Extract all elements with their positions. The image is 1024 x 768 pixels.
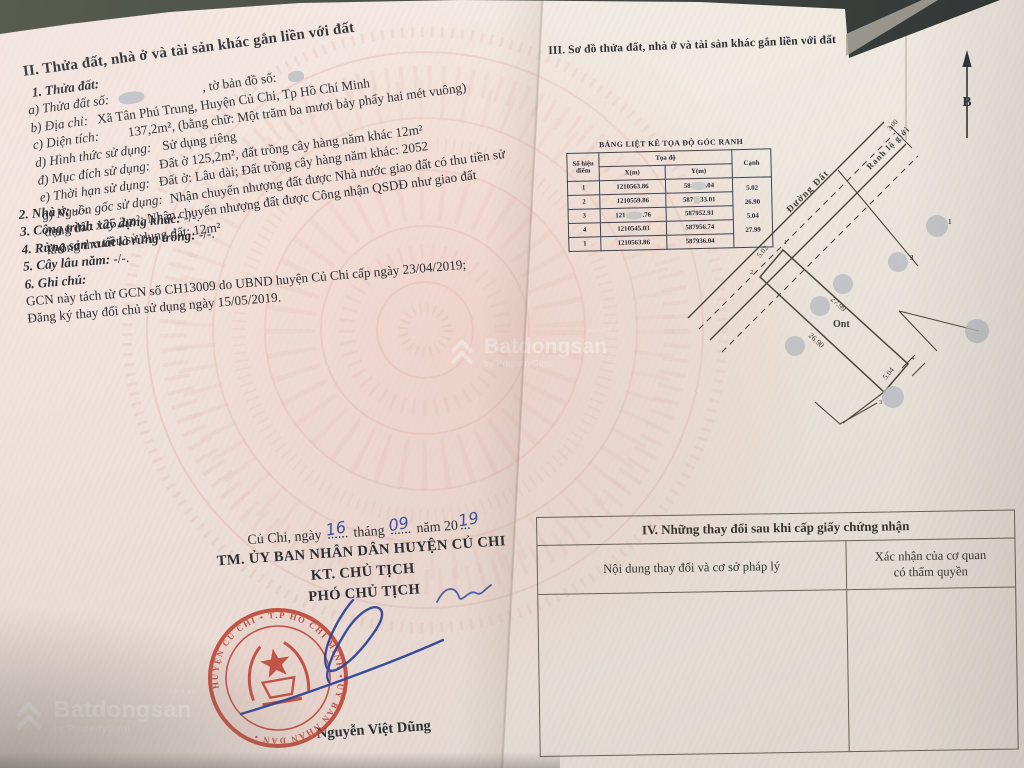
north-label: B — [962, 94, 971, 109]
section-4-col2-header: Xác nhận của cơ quan có thẩm quyền — [846, 538, 1015, 589]
document-photo: II. Thửa đất, nhà ở và tài sản khác gắn … — [0, 0, 1024, 768]
watermark-brand: Batdongsancom.vn — [53, 698, 191, 722]
section-4-empty-rows — [538, 587, 1017, 755]
batdongsan-logo-icon — [447, 337, 477, 367]
handwritten-day: 16 — [324, 517, 347, 539]
edge-27-99: 27.99 — [829, 295, 848, 314]
section-4-col1-header: Nội dung thay đổi và cơ sở pháp lý — [537, 541, 846, 594]
section-4-table: IV. Những thay đổi sau khi cấp giấy chứn… — [536, 509, 1019, 756]
redaction-blob — [287, 70, 304, 83]
underlying-sheet-edge — [845, 0, 1005, 60]
point-3: 3 — [879, 399, 882, 406]
watermark-suffix: com.vn — [587, 328, 611, 335]
col-point-header: Số hiệu điểm — [567, 153, 600, 182]
handwritten-signature — [235, 582, 450, 734]
watermark-suffix: com.vn — [169, 689, 196, 696]
handwritten-month-slot: ......09 — [388, 522, 414, 540]
handwritten-month: 09 — [387, 513, 410, 535]
point-1: 1 — [784, 239, 787, 246]
redaction-blob — [625, 211, 642, 219]
watermark: Batdongsancom.vn by PropertyGuru — [447, 336, 607, 368]
col-x-header: X(m) — [599, 165, 665, 180]
edge-26-90: 26.90 — [807, 331, 826, 350]
batdongsan-logo-icon — [12, 699, 46, 733]
edge-5-04: 5.04 — [881, 365, 896, 381]
redaction-blob — [118, 90, 145, 105]
certificate-paper: II. Thửa đất, nhà ở và tài sản khác gắn … — [0, 0, 1024, 768]
cadastral-sketch: Đường Đất Ranh lộ giới 3.00 5.02 27.99 2… — [678, 108, 1024, 470]
point-2: 2 — [750, 269, 753, 276]
watermark: Batdongsancom.vn by PropertyGuru — [12, 698, 192, 733]
neighbour-point-3: 3 — [910, 254, 914, 262]
handwritten-day-slot: ......16 — [325, 526, 351, 544]
watermark-byline: by PropertyGuru — [53, 724, 191, 734]
neighbour-point-1: 1 — [948, 218, 952, 226]
edge-5-02: 5.02 — [755, 243, 770, 259]
land-type-label: Ont — [833, 319, 850, 330]
road-label: Đường Đất — [784, 168, 831, 215]
